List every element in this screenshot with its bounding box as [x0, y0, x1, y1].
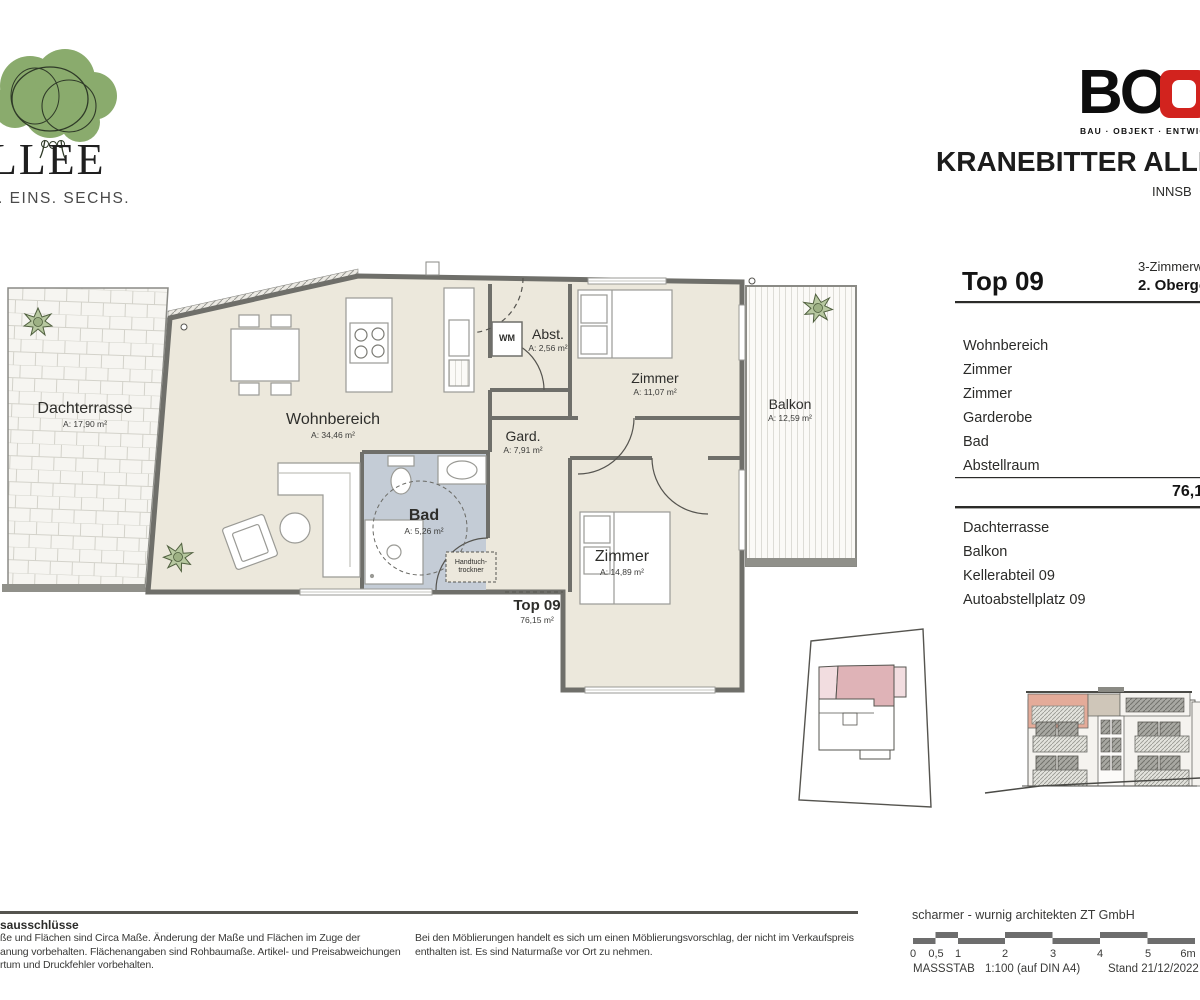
- footer-left-title: sausschlüsse: [0, 918, 79, 932]
- brand-name: LLEE: [0, 134, 106, 185]
- panel-floor: 2. Oberge: [1138, 277, 1200, 294]
- boe-glyph-hole: [1172, 80, 1196, 108]
- elevation: [985, 687, 1200, 793]
- cabinet-hatch: [449, 360, 469, 386]
- panel-header-line: [955, 301, 1200, 303]
- panel-extra-item: Balkon: [963, 540, 1086, 564]
- footer-middle-text: Bei den Möblierungen handelt es sich um …: [415, 932, 854, 959]
- panel-sum-line-thick: [955, 506, 1200, 508]
- fridge: [449, 320, 469, 356]
- dining-chair: [271, 315, 291, 327]
- handtuchtrockner-label: Handtuch- trockner: [446, 559, 496, 575]
- room-label-bad: Bad A: 5,26 m²: [404, 507, 443, 536]
- penthouse-windows: [1126, 698, 1184, 712]
- balkon-parapet: [746, 558, 856, 566]
- washbasin: [447, 461, 477, 479]
- shower-dot: [371, 575, 374, 578]
- panel-room-list: Wohnbereich Zimmer Zimmer Garderobe Bad …: [963, 334, 1048, 478]
- boe-logo-letters: BO: [1078, 62, 1165, 124]
- dim-marker-1: [181, 324, 187, 330]
- wc-tank: [388, 456, 414, 466]
- panel-room-item: Zimmer: [963, 382, 1048, 406]
- dining-table: [231, 329, 299, 381]
- panel-extra-item: Dachterrasse: [963, 516, 1086, 540]
- room-label-wohnbereich: Wohnbereich A: 34,46 m²: [286, 411, 380, 440]
- mid-roof-block: [1088, 694, 1120, 716]
- room-label-zimmer2: Zimmer A: 14,89 m²: [595, 548, 649, 577]
- panel-room-item: Abstellraum: [963, 454, 1048, 478]
- project-city: INNSB: [1152, 184, 1192, 199]
- unit-highlight-tab: [894, 667, 906, 697]
- scale-value: 1:100 (auf DIN A4): [985, 963, 1080, 975]
- room-label-gard: Gard. A: 7,91 m²: [503, 428, 542, 455]
- chimney: [1098, 687, 1124, 692]
- scale-date: Stand 21/12/2022: [1108, 963, 1199, 975]
- footer-left-text: ße und Flächen sind Circa Maße. Änderung…: [0, 932, 401, 973]
- scale-label: MASSSTAB: [913, 963, 975, 975]
- panel-room-item: Garderobe: [963, 406, 1048, 430]
- project-title: KRANEBITTER ALLEE: [936, 146, 1200, 178]
- room-label-dachterrasse: Dachterrasse A: 17,90 m²: [37, 400, 132, 429]
- panel-apartment-type: 3-Zimmerw: [1138, 259, 1200, 274]
- room-label-balkon: Balkon A: 12,59 m²: [768, 396, 812, 423]
- wm-label: WM: [492, 333, 522, 343]
- panel-room-item: Bad: [963, 430, 1048, 454]
- terrace-parapet: [2, 584, 148, 592]
- dining-chair: [239, 383, 259, 395]
- footer-divider: [0, 911, 858, 914]
- panel-unit-title: Top 09: [962, 266, 1044, 297]
- boe-logo-glyph-icon: [1160, 70, 1200, 118]
- panel-extra-item: Kellerabteil 09: [963, 564, 1086, 588]
- panel-room-item: Zimmer: [963, 358, 1048, 382]
- room-label-abst: Abst. A: 2,56 m²: [528, 326, 567, 353]
- panel-extras-list: Dachterrasse Balkon Kellerabteil 09 Auto…: [963, 516, 1086, 612]
- dining-chair: [271, 383, 291, 395]
- scale-bar: [913, 932, 1195, 944]
- dim-marker-2: [749, 278, 755, 284]
- unit-label: Top 09 76,15 m²: [513, 597, 560, 625]
- boe-tagline: BAU · OBJEKT · ENTWIC: [1080, 126, 1200, 136]
- dining-chair: [239, 315, 259, 327]
- pillow: [584, 516, 610, 543]
- pillow: [581, 326, 607, 354]
- wc-bowl: [391, 468, 411, 494]
- room-label-zimmer1: Zimmer A: 11,07 m²: [631, 370, 678, 397]
- building-bottom-tab: [860, 750, 890, 759]
- coffee-table: [280, 513, 310, 543]
- panel-room-item: Wohnbereich: [963, 334, 1048, 358]
- floor-plan: [2, 262, 856, 693]
- pillow: [581, 295, 607, 323]
- balkon-floor: [746, 286, 856, 566]
- annex: [1192, 702, 1200, 786]
- brand-tagline: . EINS. SECHS.: [0, 190, 130, 208]
- floorplan-sheet: LLEE . EINS. SECHS. BO BAU · OBJEKT · EN…: [0, 0, 1200, 1000]
- entry-pillar: [426, 262, 439, 275]
- building-body: [819, 699, 894, 750]
- unit-highlight-light: [819, 666, 838, 699]
- architect-name: scharmer - wurnig architekten ZT GmbH: [912, 908, 1135, 922]
- panel-extra-item: Autoabstellplatz 09: [963, 588, 1086, 612]
- panel-total-area: 76,1: [1172, 483, 1200, 501]
- top-floor-rail: [1032, 706, 1084, 724]
- site-plan: [799, 629, 931, 807]
